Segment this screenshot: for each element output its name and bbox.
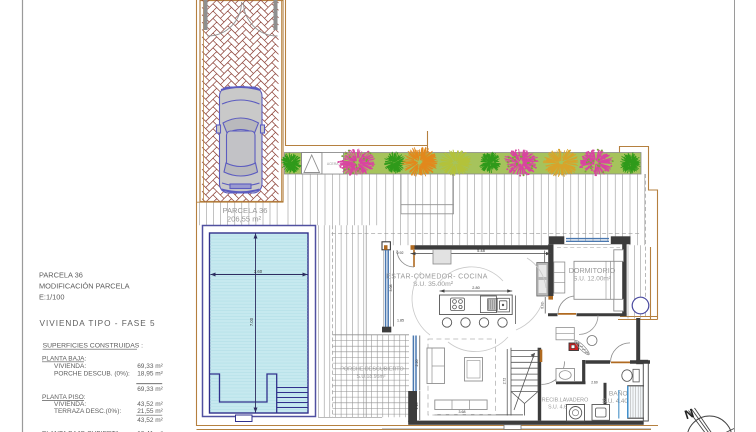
svg-text:DORMITORIO: DORMITORIO (569, 266, 616, 275)
svg-text:PLANTA PISO:: PLANTA PISO: (42, 394, 86, 401)
svg-text:SUPERFICIES CONSTRUIDAS :: SUPERFICIES CONSTRUIDAS : (43, 343, 144, 350)
svg-text:PORCHE DESCUB. (0%):: PORCHE DESCUB. (0%): (54, 370, 130, 377)
svg-text:2.20: 2.20 (415, 360, 419, 367)
svg-text:69,33 m²: 69,33 m² (137, 363, 163, 370)
svg-text:43,52 m²: 43,52 m² (137, 401, 163, 408)
svg-text:VIVIENDA TIPO - FASE 5: VIVIENDA TIPO - FASE 5 (40, 319, 156, 328)
svg-text:MODIFICACIÓN PARCELA: MODIFICACIÓN PARCELA (39, 281, 130, 290)
svg-text:3.68: 3.68 (459, 410, 466, 414)
svg-text:0.92: 0.92 (397, 251, 404, 255)
svg-text:S.U.18.95m²: S.U.18.95m² (356, 374, 385, 380)
svg-text:5.48: 5.48 (477, 248, 486, 253)
svg-text:PORCHE DESCUBIERTO: PORCHE DESCUBIERTO (340, 367, 403, 373)
svg-text:21,55 m²: 21,55 m² (137, 408, 163, 415)
svg-text:18,95 m²: 18,95 m² (137, 370, 163, 377)
svg-text:TERRAZA DESC.(0%):: TERRAZA DESC.(0%): (54, 408, 121, 415)
svg-text:ESTAR-COMEDOR- COCINA: ESTAR-COMEDOR- COCINA (386, 274, 488, 281)
svg-text:E:1/100: E:1/100 (39, 292, 64, 301)
svg-text:43,52 m²: 43,52 m² (137, 417, 163, 424)
svg-text:3.08: 3.08 (389, 285, 393, 292)
svg-text:VIVIENDA:: VIVIENDA: (54, 401, 86, 408)
svg-text:7.00: 7.00 (249, 317, 254, 326)
svg-text:PARCELA 36: PARCELA 36 (39, 270, 83, 279)
svg-text:S.U. 12.00m²: S.U. 12.00m² (573, 276, 611, 283)
svg-text:VIVIENDA:: VIVIENDA: (54, 363, 86, 370)
svg-text:206,55 m²: 206,55 m² (227, 215, 262, 224)
svg-text:2.60: 2.60 (591, 381, 598, 385)
svg-text:1.16: 1.16 (415, 403, 419, 410)
svg-text:S.U. 35.00m²: S.U. 35.00m² (413, 281, 454, 288)
svg-text:PLANTA BAJA:: PLANTA BAJA: (42, 355, 87, 362)
svg-text:1.85: 1.85 (397, 319, 404, 323)
svg-text:3.60: 3.60 (254, 269, 263, 274)
svg-text:2.72: 2.72 (502, 378, 506, 385)
svg-text:69,33 m²: 69,33 m² (137, 386, 163, 393)
svg-text:2.80: 2.80 (472, 286, 479, 290)
svg-text:ACERA: ACERA (327, 162, 339, 166)
svg-text:RECIB.LAVADERO: RECIB.LAVADERO (542, 397, 589, 403)
